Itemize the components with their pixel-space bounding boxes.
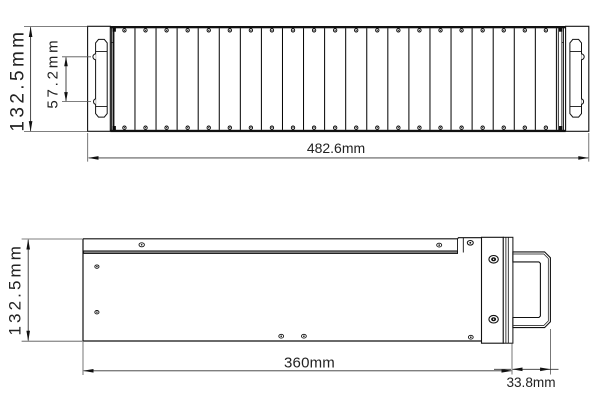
svg-text:57.2mm: 57.2mm bbox=[44, 38, 61, 109]
svg-text:132.5mm: 132.5mm bbox=[7, 29, 28, 132]
svg-text:132.5mm: 132.5mm bbox=[5, 243, 24, 336]
svg-text:360mm: 360mm bbox=[284, 355, 335, 372]
svg-text:33.8mm: 33.8mm bbox=[506, 375, 555, 390]
svg-text:482.6mm: 482.6mm bbox=[307, 140, 365, 156]
